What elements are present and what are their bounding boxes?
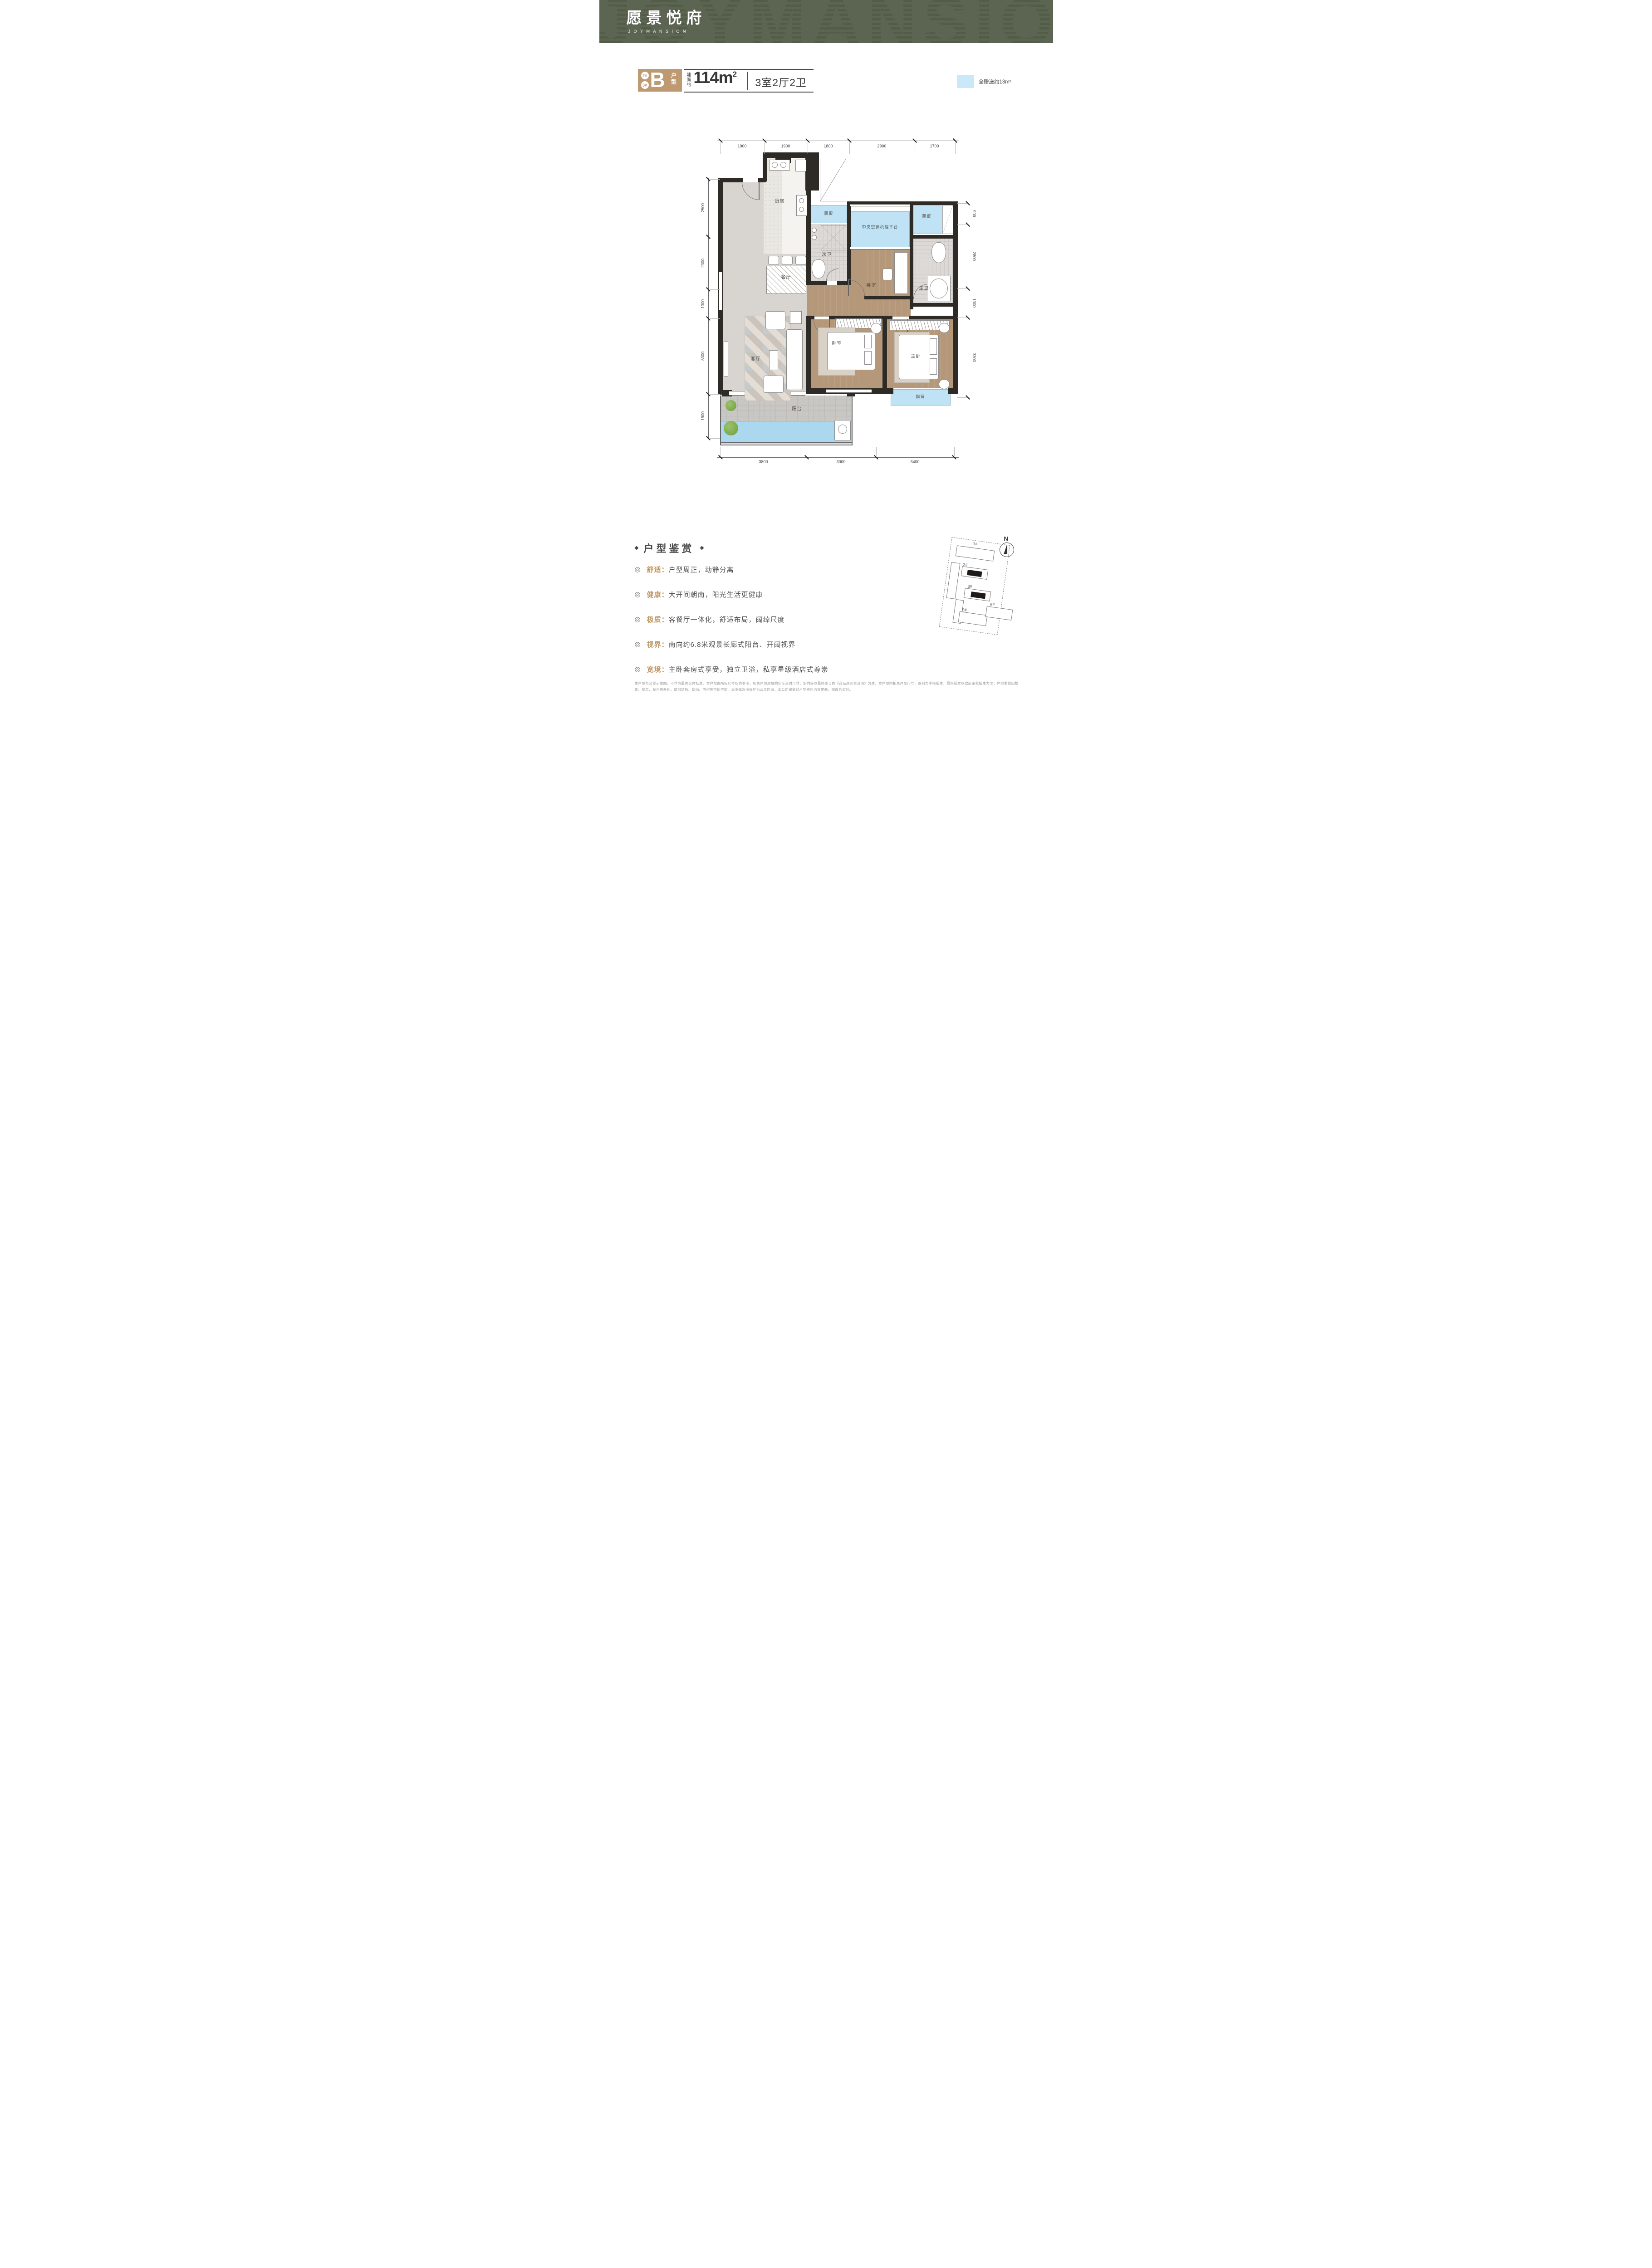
wash-basin (930, 279, 948, 298)
dim-line-top (717, 141, 959, 141)
unit-type-letter: B (650, 68, 665, 91)
dim-bottom-0: 3800 (759, 459, 768, 464)
room-label-kitchen: 厨房 (775, 197, 785, 204)
compass-needle-light (1007, 545, 1010, 554)
room-label-dining: 餐厅 (781, 274, 791, 280)
shower (821, 225, 846, 250)
feature-item-quality: ◎ 极质： 客餐厅一体化，舒适布局，阔绰尺度 (635, 614, 925, 625)
ext (721, 447, 721, 456)
ext (807, 447, 807, 456)
wall (864, 296, 912, 299)
desk-chair (882, 269, 892, 280)
dim-right-2: 1300 (972, 298, 976, 308)
feature-item-comfort: ◎ 舒适： 户型周正，动静分离 (635, 564, 925, 575)
sink-basin (799, 207, 804, 212)
site-unit-highlight (971, 591, 985, 599)
tv-cabinet (724, 341, 728, 376)
ext (710, 179, 720, 180)
building-tag-3: 3# (641, 81, 649, 89)
diamond-icon (700, 546, 704, 550)
feature-text: 主卧套房式享受，独立卫浴，私享星级酒店式尊崇 (669, 665, 828, 674)
wall (806, 224, 811, 285)
feature-item-health: ◎ 健康： 大开间朝南，阳光生活更健康 (635, 589, 925, 600)
bed2-window (826, 389, 872, 393)
ext (957, 203, 967, 204)
coffee-table (769, 350, 778, 370)
dim-left-3: 3300 (701, 352, 705, 361)
north-label: N (1004, 535, 1008, 542)
wall (882, 316, 887, 393)
burner (780, 162, 786, 168)
balcony-rail-right (852, 396, 853, 445)
dining-chair (795, 256, 806, 265)
feature-label: 健康： (647, 590, 669, 599)
compass-needle-dark (1004, 545, 1007, 554)
wall (806, 316, 811, 393)
feature-label: 极质： (647, 615, 669, 624)
dim-right-1: 2800 (972, 252, 976, 261)
dining-chair (782, 256, 793, 265)
bullseye-icon: ◎ (635, 590, 641, 598)
pillow (930, 358, 937, 375)
ext (808, 142, 808, 154)
dim-top-1: 1900 (781, 144, 790, 148)
dim-line-right (968, 202, 968, 399)
ext (710, 237, 720, 237)
ext (710, 394, 720, 395)
ext (957, 318, 967, 318)
feature-text: 大开间朝南，阳光生活更健康 (669, 590, 763, 599)
wall (953, 201, 958, 392)
area-value: 114m2 (694, 68, 737, 87)
features-title-row: 户型鉴赏 (635, 541, 704, 555)
room-label-ac: 中央空调机组平台 (862, 224, 898, 230)
wall (912, 235, 954, 239)
wall (912, 303, 954, 307)
living-side-window (719, 272, 722, 310)
feature-text: 南向约6.8米观景长廊式阳台、开阔视界 (669, 640, 796, 649)
room-label-bed2: 卧室 (832, 340, 842, 347)
desk (894, 252, 908, 294)
entry-door-leaf (759, 182, 760, 200)
fridge (795, 160, 806, 171)
room-label-bath1: 主卫 (919, 284, 929, 291)
area-superscript: 2 (733, 70, 736, 78)
room-label-master: 主卧 (911, 352, 921, 359)
area-number: 114m (694, 68, 733, 87)
sink-basin (799, 198, 804, 203)
ext (954, 447, 955, 456)
bullseye-icon: ◎ (635, 665, 641, 673)
ext (876, 447, 877, 456)
diamond-icon (634, 546, 638, 550)
ext (710, 289, 720, 290)
dim-bottom-1: 3000 (836, 459, 845, 464)
sofa (786, 329, 803, 390)
site-unit-highlight (967, 570, 982, 577)
ext (915, 142, 915, 154)
rule-bottom (684, 92, 814, 93)
burner (772, 162, 778, 168)
ceiling-fan (871, 323, 882, 334)
nightstand (939, 323, 950, 333)
plant (724, 421, 738, 435)
wall (909, 316, 958, 319)
bay-window-2 (912, 205, 941, 234)
area-prefix: 建面约 (687, 73, 692, 88)
dim-left-0: 2500 (701, 203, 705, 212)
feature-label: 舒适： (647, 565, 669, 574)
bullseye-icon: ◎ (635, 565, 641, 573)
armchair (764, 376, 784, 393)
room-label-balcony: 阳台 (792, 405, 802, 412)
header-banner: JOYMANSION 愿景悦府 JOYMANSION (599, 0, 1053, 43)
toilet-master (931, 242, 946, 263)
pillow (864, 351, 872, 365)
ext (849, 142, 850, 154)
unit-type-suffix: 户型 (670, 73, 678, 85)
dim-top-4: 1700 (930, 144, 939, 148)
pillow (930, 338, 937, 355)
ext (957, 288, 967, 289)
bullseye-icon: ◎ (635, 615, 641, 623)
pillow (864, 335, 872, 348)
ext (955, 142, 956, 154)
basin (812, 235, 817, 240)
dim-right-3: 3300 (972, 353, 976, 362)
wall (910, 205, 913, 309)
wall (948, 388, 958, 394)
armchair (765, 311, 785, 329)
lightwell-void (820, 159, 846, 201)
ext (710, 318, 720, 319)
dim-left-2: 1300 (701, 299, 705, 308)
feature-item-space: ◎ 宽境： 主卧套房式享受，独立卫浴，私享星级酒店式尊崇 (635, 664, 925, 675)
dim-bottom-2: 3400 (910, 459, 919, 464)
ac-window-top (850, 204, 910, 206)
feature-label: 宽境： (647, 665, 669, 674)
gift-area-swatch (957, 75, 974, 88)
wall (882, 388, 893, 394)
side-table (790, 311, 802, 324)
bullseye-icon: ◎ (635, 640, 641, 648)
dim-top-0: 1900 (737, 144, 746, 148)
ext (721, 142, 721, 154)
bedmid-door-leaf (848, 279, 849, 296)
dim-top-3: 2900 (877, 144, 886, 148)
ext (957, 397, 967, 398)
feature-label: 视界： (647, 640, 669, 649)
disclaimer-text: 本户型为装修示意图，不作为最终交付标准。本户型图所标尺寸仅供参考，相关户型房屋的… (635, 680, 1019, 694)
toilet (812, 259, 825, 279)
room-label-living: 客厅 (751, 355, 761, 362)
ext (765, 142, 765, 154)
divider (747, 72, 748, 90)
brochure-page: JOYMANSION 愿景悦府 JOYMANSION 2# 3# B 户型 建面… (599, 0, 1053, 711)
building-tag-2: 2# (641, 72, 649, 79)
room-label-bed-mid: 卧室 (867, 282, 877, 288)
balcony-rail-outer (720, 445, 853, 445)
features-title: 户型鉴赏 (644, 541, 695, 555)
dim-left-1: 2300 (701, 259, 705, 268)
washer-drum (838, 425, 847, 434)
nightstand (939, 379, 950, 389)
dim-line-left (708, 178, 709, 439)
unit-type-badge: 2# 3# B 户型 (638, 69, 682, 92)
wall (806, 281, 827, 285)
feature-item-view: ◎ 视界： 南向约6.8米观景长廊式阳台、开阔视界 (635, 639, 925, 650)
rooms-summary: 3室2厅2卫 (755, 74, 807, 89)
dim-line-bottom (717, 457, 959, 458)
balcony-gift-zone (721, 422, 853, 444)
site-plan: 1# 2# 3# 5# 6# N (935, 535, 1026, 640)
wall (805, 152, 819, 191)
brand-logo: 愿景悦府 (627, 5, 706, 28)
feature-text: 户型周正，动静分离 (669, 565, 734, 574)
room-label-bay3: 飘窗 (916, 394, 925, 400)
compass-icon (1000, 543, 1014, 557)
ext (957, 225, 967, 225)
ac-window-bottom (850, 247, 910, 249)
void-right (942, 205, 953, 234)
brand-logo-en: JOYMANSION (628, 29, 690, 34)
plant (726, 400, 736, 411)
room-label-bath2: 次卫 (822, 251, 832, 258)
dim-right-0: 900 (972, 210, 976, 217)
room-label-bay1: 飘窗 (824, 210, 833, 216)
gift-area-label: 全赠送约13m² (979, 78, 1011, 85)
room-label-bay2: 飘窗 (922, 213, 931, 219)
dining-chair (768, 256, 779, 265)
balcony-rail-bottom (720, 442, 853, 443)
basin (812, 228, 817, 233)
wall (847, 204, 851, 285)
dim-left-4: 1900 (701, 411, 705, 420)
dim-top-2: 1800 (824, 144, 833, 148)
feature-text: 客餐厅一体化，舒适布局，阔绰尺度 (669, 615, 785, 624)
balcony-rail-left (720, 396, 721, 445)
ext (710, 438, 720, 439)
site-label-1: 1# (973, 542, 978, 546)
wall (837, 281, 849, 285)
